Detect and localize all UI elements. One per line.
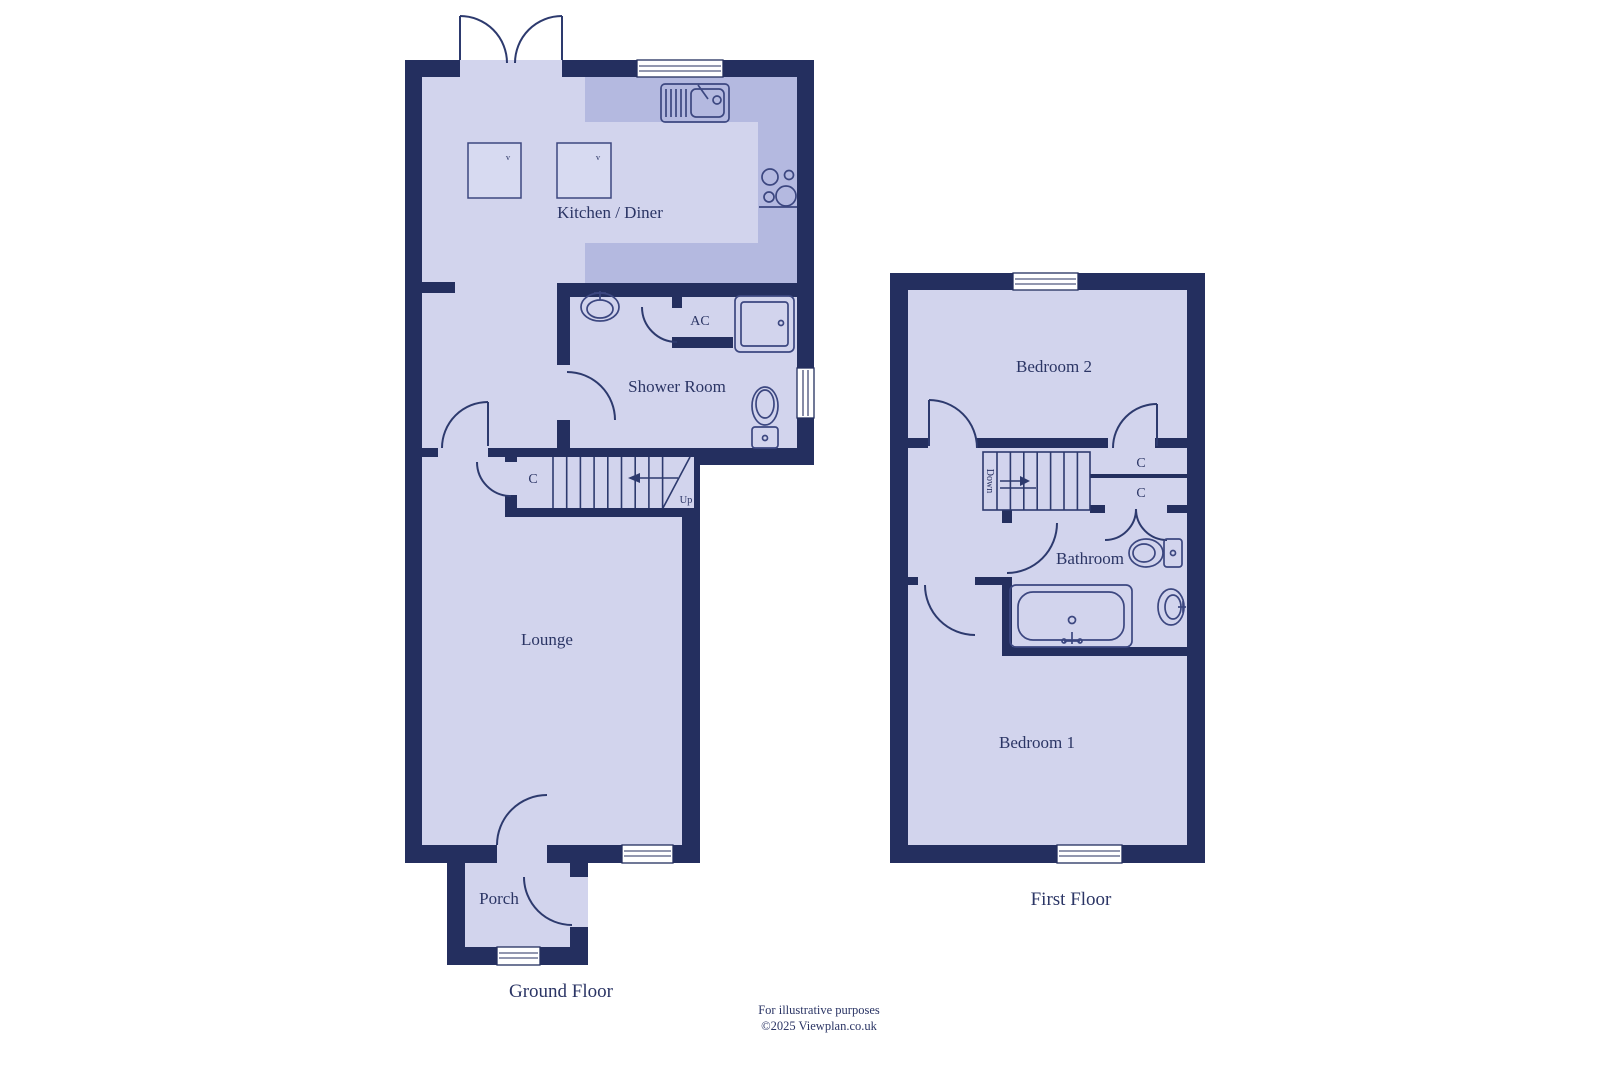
footer-disclaimer: For illustrative purposes	[758, 1003, 880, 1017]
room-label-porch: Porch	[479, 889, 519, 908]
room-label-lounge: Lounge	[521, 630, 573, 649]
shower-room-window-icon	[797, 368, 814, 418]
room-label-kitchen-diner: Kitchen / Diner	[557, 203, 663, 222]
footer: For illustrative purposes ©2025 Viewplan…	[758, 1003, 880, 1033]
ground-floor-plan: Kitchen / Diner Shower Room Lounge Porch…	[405, 16, 814, 1002]
first-floor-title: First Floor	[1031, 889, 1112, 910]
label-airing-cupboard: AC	[690, 314, 709, 329]
label-cupboard-ground: C	[528, 472, 537, 487]
floorplan-page: Kitchen / Diner Shower Room Lounge Porch…	[0, 0, 1620, 1079]
room-label-bedroom2: Bedroom 2	[1016, 357, 1092, 376]
label-stairs-down: Down	[984, 469, 995, 493]
lounge-window-icon	[622, 845, 673, 863]
room-label-shower-room: Shower Room	[628, 377, 726, 396]
bedroom1-window-icon	[1057, 845, 1122, 863]
first-floor-plan: Bedroom 2 Bathroom Bedroom 1 C C Down Fi…	[890, 273, 1205, 910]
shower-cubicle-icon	[735, 296, 794, 352]
label-cupboard-bottom: C	[1136, 486, 1145, 501]
appliance-square-1	[468, 143, 521, 198]
french-doors-icon	[460, 16, 562, 63]
label-stairs-up: Up	[680, 495, 693, 506]
porch-window-icon	[497, 947, 540, 965]
floorplan-svg: Kitchen / Diner Shower Room Lounge Porch…	[0, 0, 1620, 1079]
kitchen-window-icon	[637, 60, 723, 77]
appliance-square-2	[557, 143, 611, 198]
label-cupboard-top: C	[1136, 456, 1145, 471]
ground-floor-title: Ground Floor	[509, 981, 614, 1002]
room-label-bathroom: Bathroom	[1056, 549, 1124, 568]
room-label-bedroom1: Bedroom 1	[999, 733, 1075, 752]
bedroom2-window-icon	[1013, 273, 1078, 290]
footer-copyright: ©2025 Viewplan.co.uk	[761, 1019, 878, 1033]
